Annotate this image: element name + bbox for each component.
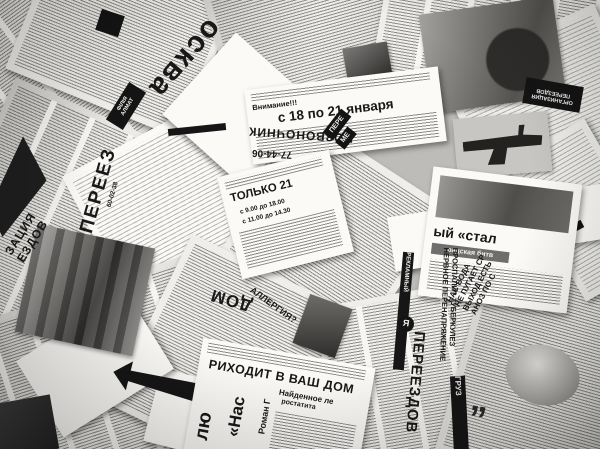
gun-photo — [453, 111, 553, 179]
dark-scrap — [0, 394, 59, 449]
stal-headline: ый «стал — [433, 223, 498, 247]
fine-print — [268, 411, 357, 449]
gruz-text: ГРУЗ — [453, 376, 463, 396]
roman-byline: Роман Г — [256, 398, 272, 435]
lyu-vertical: лю — [191, 410, 218, 442]
newspaper-collage: осква ФІЛІЯ АЛМАТ Внимание!!! с 18 по 21… — [0, 0, 600, 449]
nas-vertical: «Нас — [223, 395, 250, 438]
reklamny-text: РЕКЛАМНЫЙ — [402, 252, 411, 292]
gun-silhouette-icon — [461, 120, 545, 172]
upside-phone: 77-44-06 — [252, 147, 293, 160]
